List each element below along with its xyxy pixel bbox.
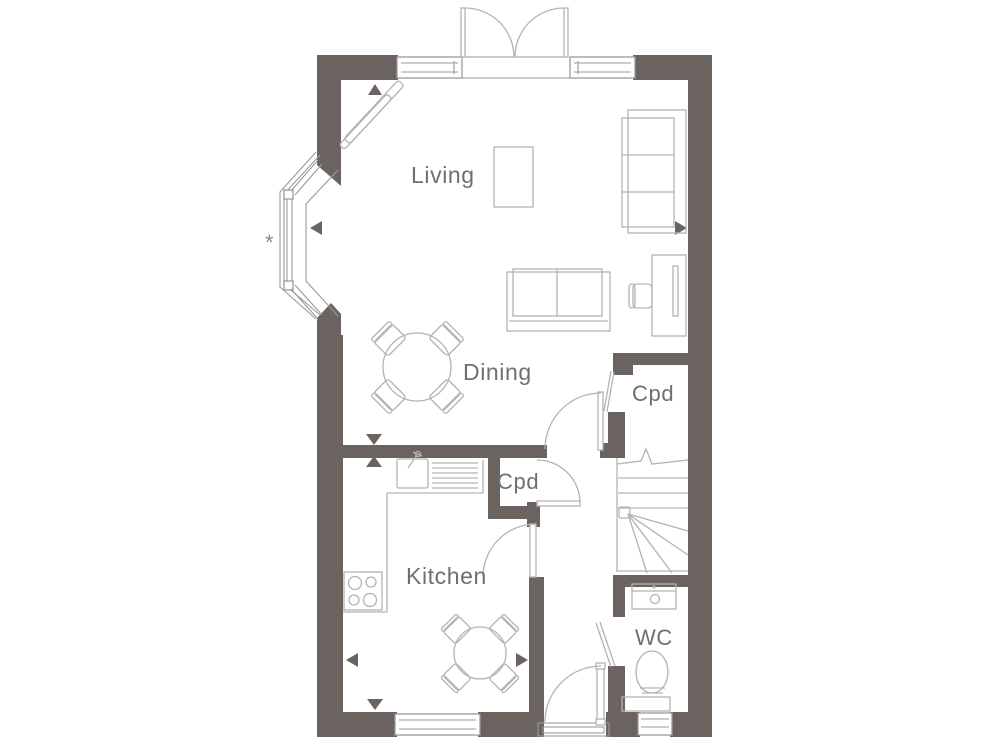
- kitchen-drainer: [432, 463, 478, 488]
- arrow-up-living: [368, 84, 382, 95]
- arrow-left-kitchen: [346, 653, 358, 667]
- kitchen-hob: [344, 572, 382, 610]
- room-label-living: Living: [411, 162, 475, 189]
- desk: [652, 255, 686, 336]
- window-living-left: [397, 57, 462, 78]
- sofa-three-seat: [622, 110, 686, 233]
- kitchen-chair: [489, 663, 519, 693]
- room-label-wc: WC: [635, 625, 673, 651]
- window-kitchen: [395, 714, 480, 735]
- kitchen-chair: [489, 614, 519, 644]
- bay-window-note-marker: *: [265, 230, 274, 256]
- arrow-left-bay: [310, 221, 322, 235]
- window-living-right: [570, 57, 635, 78]
- coffee-table: [494, 147, 533, 207]
- room-label-cupboard-upper: Cpd: [632, 381, 674, 407]
- front-door: [538, 663, 609, 736]
- window-wc: [638, 713, 672, 735]
- door-cupboard-hall: [537, 460, 580, 506]
- room-label-dining: Dining: [463, 359, 532, 386]
- desk-chair: [629, 284, 652, 308]
- door-wc: [596, 622, 615, 667]
- wc-toilet: [622, 651, 670, 711]
- stairs: [617, 449, 688, 573]
- bay-window: [280, 152, 338, 319]
- dining-chair: [371, 321, 406, 356]
- door-kitchen: [483, 524, 536, 577]
- dimension-arrows: [310, 84, 687, 710]
- kitchen-chair: [441, 663, 471, 693]
- kitchen-chair: [441, 614, 471, 644]
- floor-plan: Living Dining Kitchen Cpd Cpd WC *: [0, 0, 1000, 747]
- top-wall-openings: [397, 8, 635, 78]
- room-label-kitchen: Kitchen: [406, 563, 487, 590]
- wc-basin: [632, 584, 676, 609]
- door-cupboard-upper: [604, 371, 614, 412]
- dining-table-set: [371, 321, 464, 414]
- sofa-two-seat: [507, 269, 610, 331]
- french-doors: [461, 8, 568, 57]
- door-dining-hall: [545, 392, 603, 450]
- arrow-right-kitchen: [516, 653, 528, 667]
- arrow-down-kitchen: [367, 699, 383, 710]
- room-label-cupboard-hall: Cpd: [497, 469, 539, 495]
- arrow-down-dining: [366, 434, 382, 445]
- kitchen-table-set: [441, 614, 520, 694]
